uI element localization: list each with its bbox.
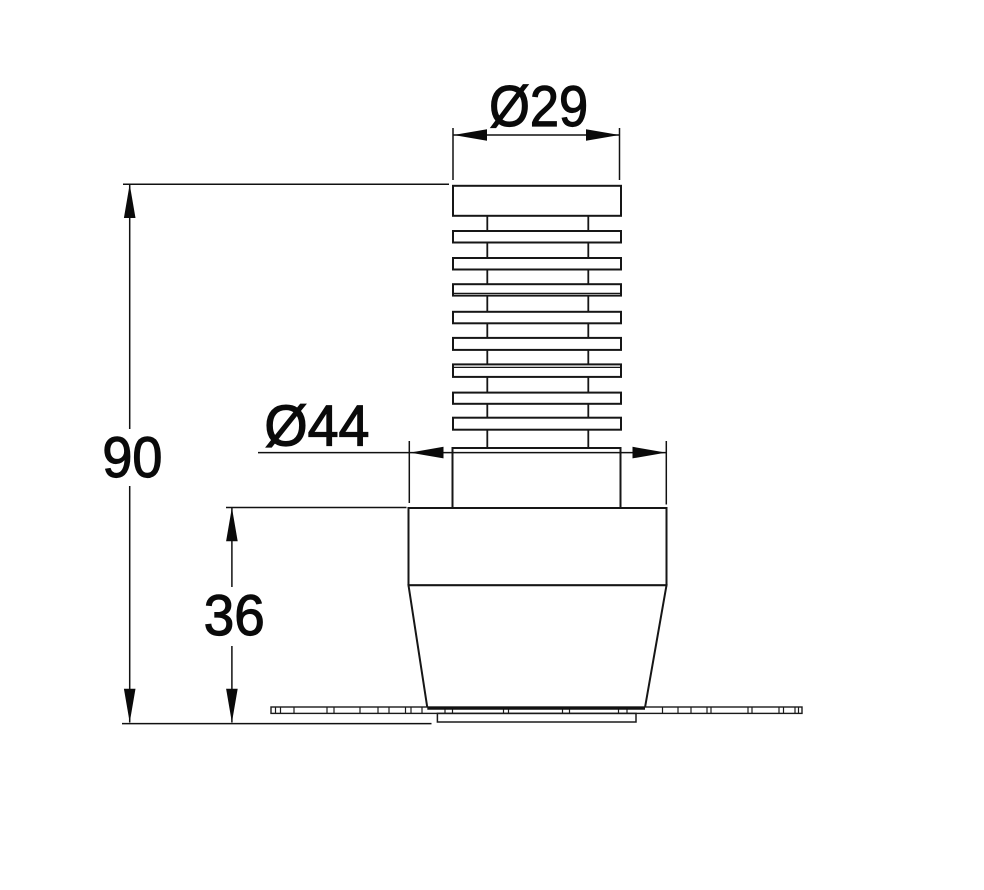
svg-text:90: 90 (102, 426, 162, 490)
svg-text:36: 36 (204, 584, 265, 648)
svg-text:Ø29: Ø29 (489, 75, 588, 139)
svg-text:Ø44: Ø44 (264, 394, 369, 458)
